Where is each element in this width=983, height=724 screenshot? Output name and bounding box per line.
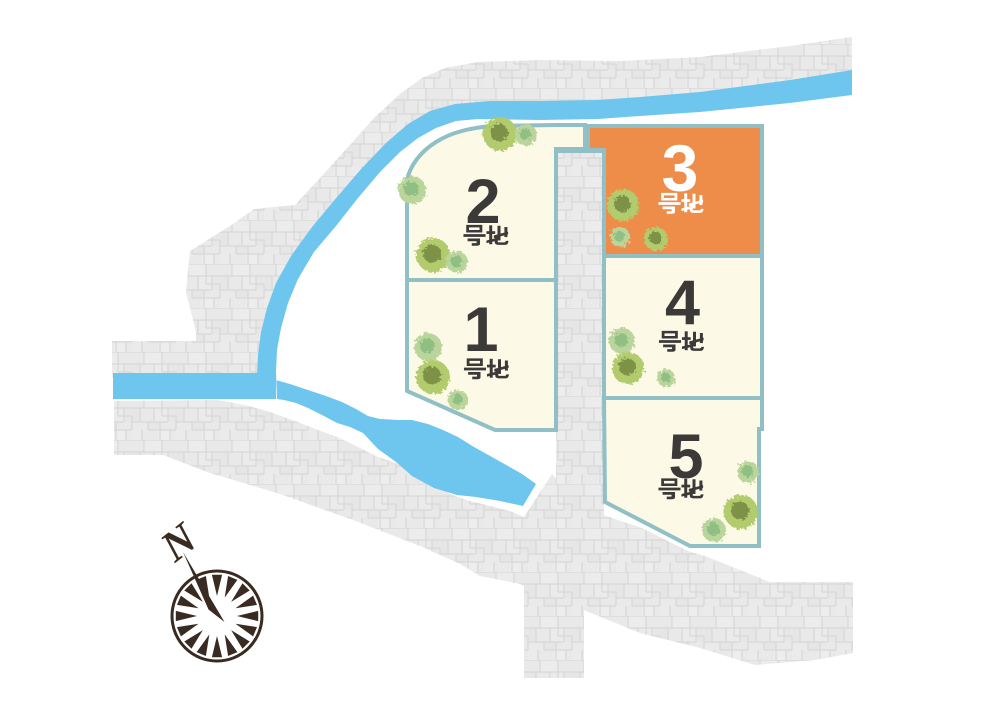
svg-text:4: 4 [665,269,700,339]
svg-text:1: 1 [463,295,498,365]
